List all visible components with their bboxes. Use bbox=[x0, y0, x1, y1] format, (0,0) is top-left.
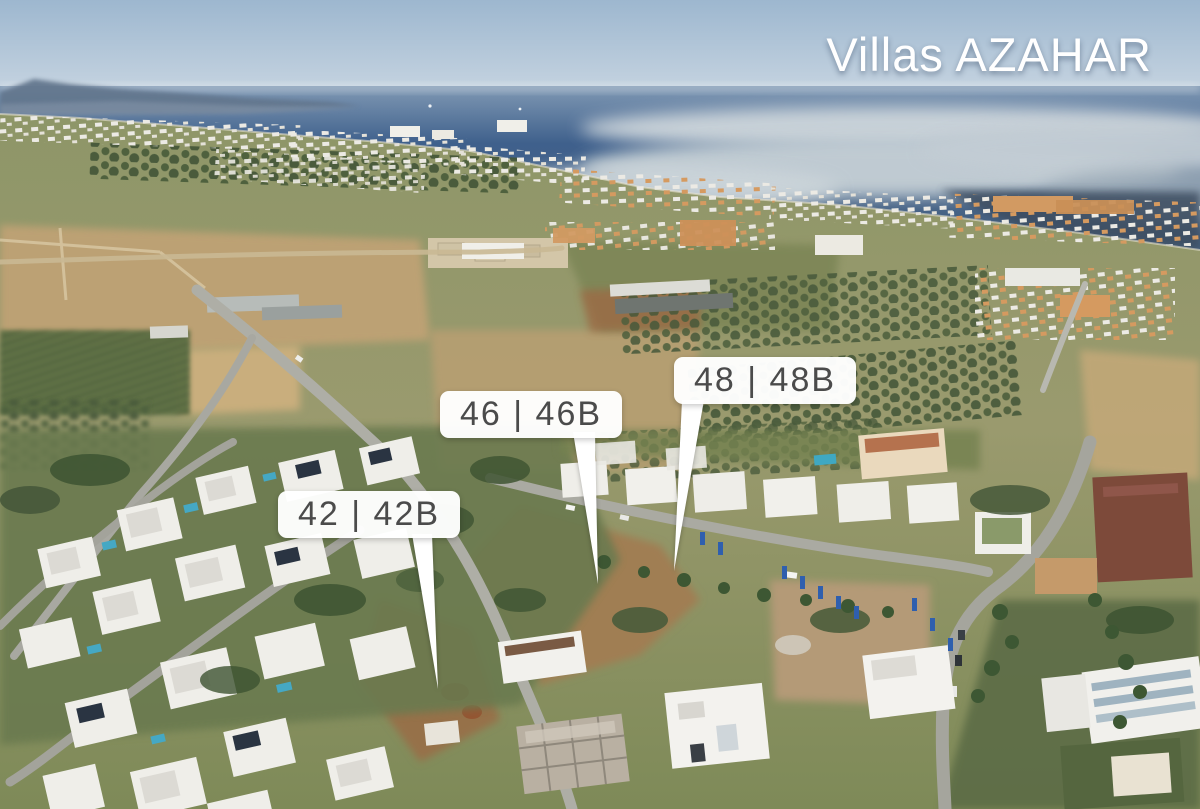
plot-label-46-text: 46 | 46B bbox=[460, 395, 602, 434]
plot-label-46: 46 | 46B bbox=[440, 391, 622, 438]
page-title: Villas AZAHAR bbox=[826, 27, 1152, 82]
plot-label-48-text: 48 | 48B bbox=[694, 361, 836, 400]
plot-label-42: 42 | 42B bbox=[278, 491, 460, 538]
plot-label-48: 48 | 48B bbox=[674, 357, 856, 404]
plot-label-42-text: 42 | 42B bbox=[298, 495, 440, 534]
aerial-photo: 42 | 42B 46 | 46B 48 | 48B Villas AZAHAR bbox=[0, 0, 1200, 809]
